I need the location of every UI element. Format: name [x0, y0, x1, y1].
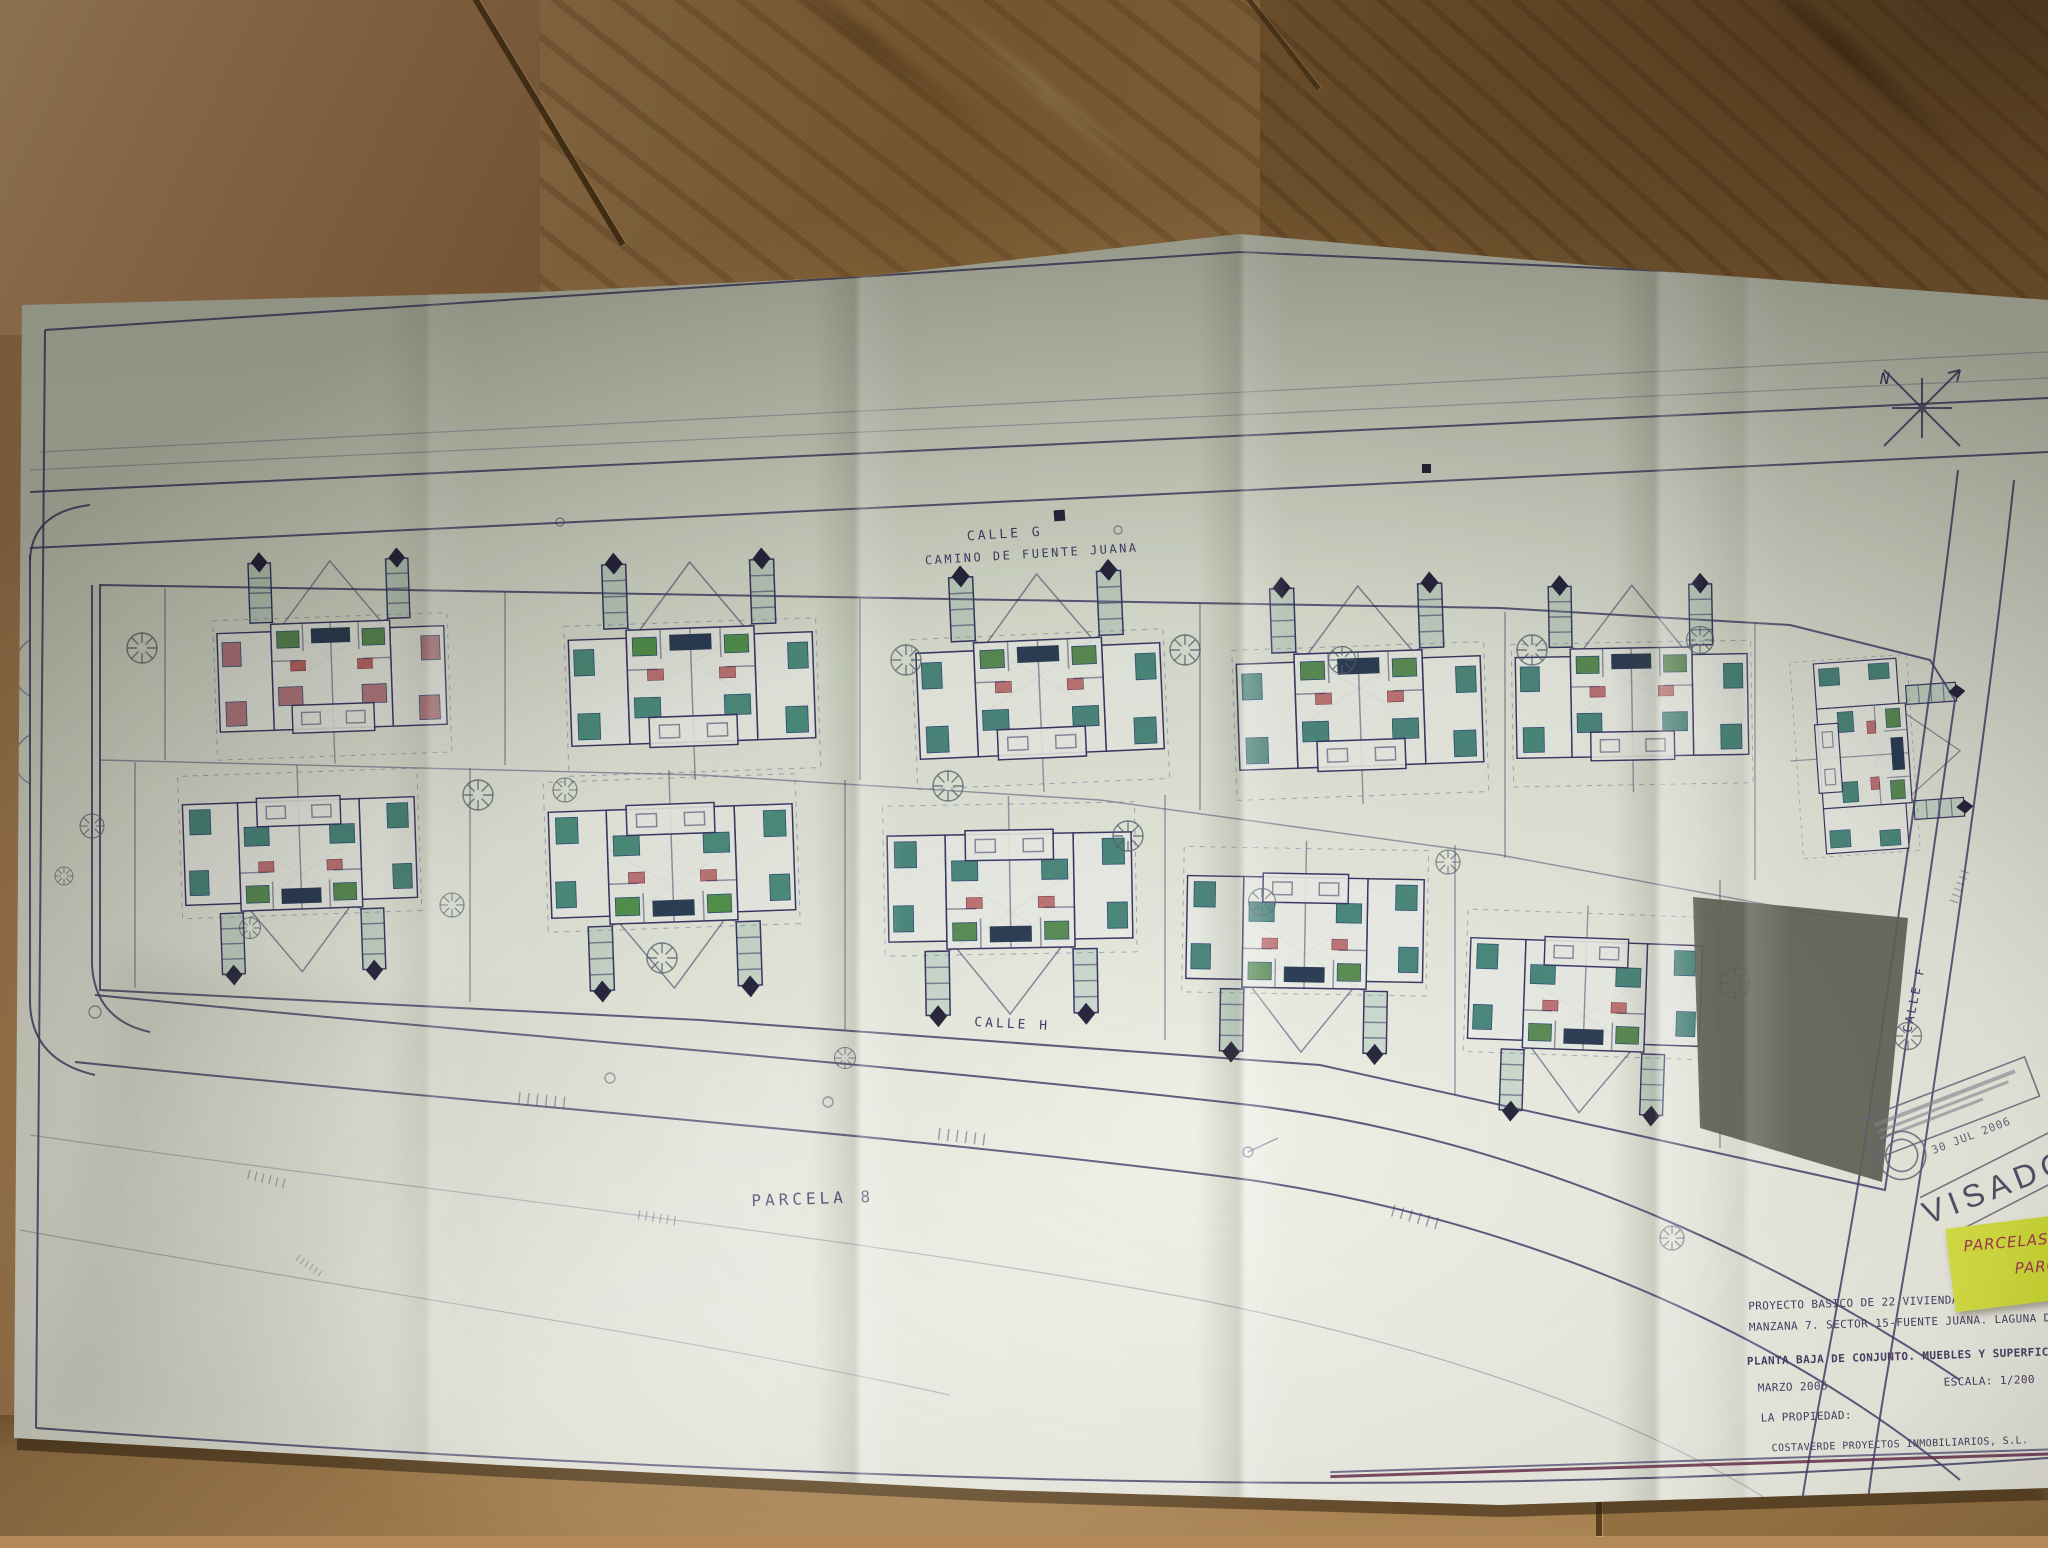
house-pair-plan [561, 546, 821, 785]
street-label-bottom: CALLE H [974, 1015, 1050, 1034]
stamp-date: 30 JUL 2006 [1930, 1115, 2013, 1157]
house-pair-plan [908, 557, 1170, 798]
north-arrow-icon [1884, 370, 1960, 446]
sticky-note-line2: PARC [2014, 1257, 2048, 1278]
north-label: N [1879, 369, 1890, 388]
street-label-top: CALLE G [967, 525, 1044, 545]
paper-wrinkle [51, 952, 829, 1518]
street-label-right: CALLE F [1900, 964, 1928, 1034]
paper-fold [1196, 230, 1288, 1530]
paper-fold [1700, 230, 1792, 1530]
house-pair-plan [882, 794, 1138, 1028]
street-label-left: CALLE C [3, 961, 17, 1029]
floor-tile [0, 0, 545, 335]
sticky-note-line1: PARCELAS [1963, 1230, 2048, 1255]
sticky-note: PARCELAS PARC [1945, 1212, 2048, 1312]
paper-fold [812, 230, 904, 1530]
title-date: MARZO 2006 [1758, 1379, 1829, 1394]
paper-fold [1612, 230, 1704, 1530]
